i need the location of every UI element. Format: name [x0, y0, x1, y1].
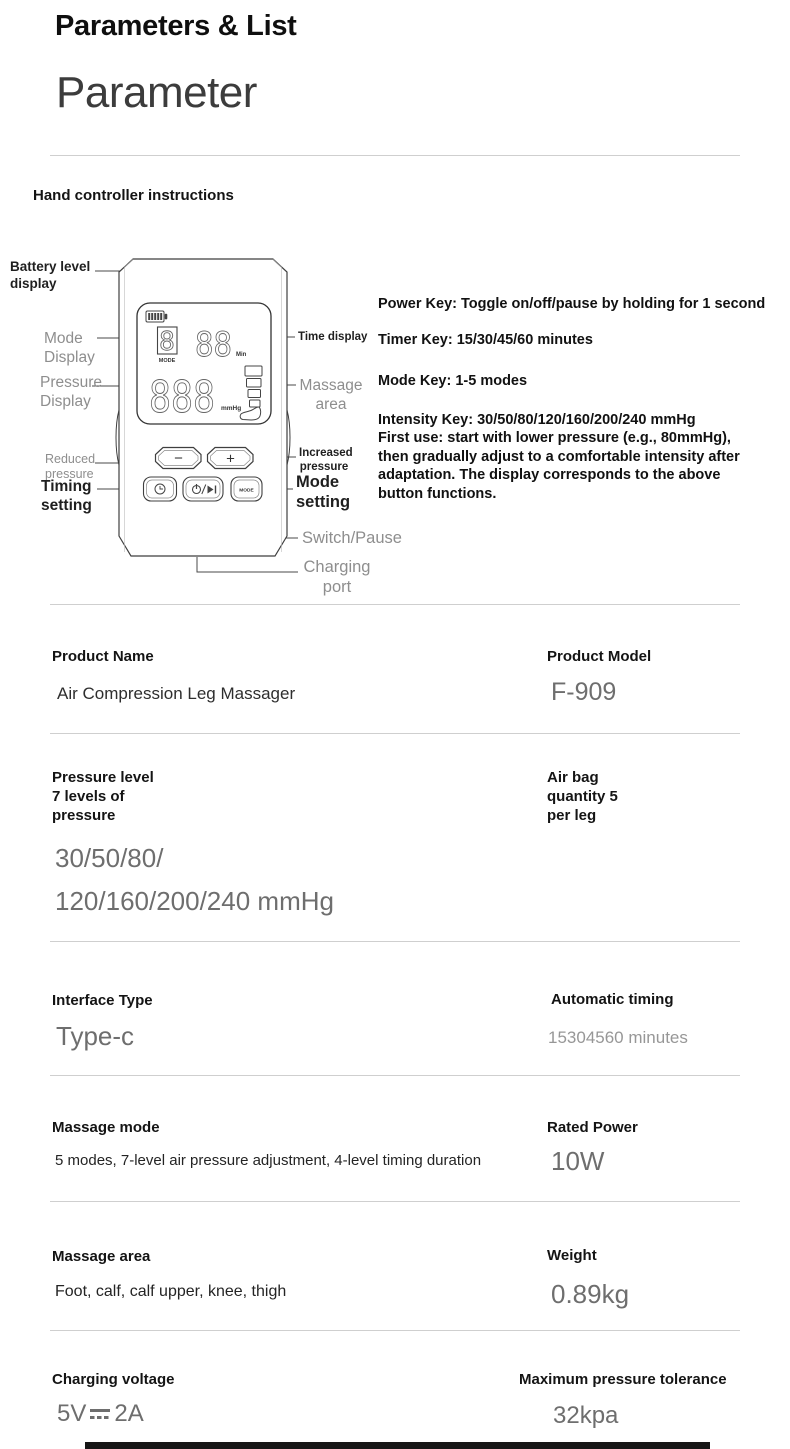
- first-use-instruction: First use: start with lower pressure (e.…: [378, 429, 790, 503]
- mode-button-label: MODE: [239, 487, 254, 493]
- time-unit-label: Min: [236, 352, 247, 358]
- product-name-label: Product Name: [52, 647, 154, 666]
- divider: [50, 1201, 740, 1202]
- switch-pause-label: Switch/Pause: [302, 529, 402, 549]
- mode-display-digit: 8: [159, 327, 175, 357]
- divider: [50, 155, 740, 156]
- interface-type-label: Interface Type: [52, 991, 153, 1010]
- time-display-digits: 88: [195, 325, 232, 365]
- divider: [50, 1330, 740, 1331]
- pressure-level-label: Pressure level 7 levels of pressure: [52, 768, 154, 825]
- weight-label: Weight: [547, 1246, 597, 1265]
- massage-mode-value: 5 modes, 7-level air pressure adjustment…: [55, 1152, 481, 1169]
- product-model-value: F-909: [551, 678, 616, 707]
- charging-voltage-label: Charging voltage: [52, 1370, 175, 1389]
- mode-display-caption: MODE: [159, 358, 176, 364]
- page-subtitle: Parameter: [56, 68, 257, 118]
- rated-power-value: 10W: [551, 1146, 604, 1177]
- footer-bar: [85, 1442, 710, 1449]
- automatic-timing-value: 15304560 minutes: [548, 1028, 688, 1048]
- mode-setting-label: Mode setting: [296, 473, 350, 512]
- hand-controller-diagram: 8 MODE 88 Min 888 mmHg −: [85, 250, 315, 585]
- charging-voltage-value: 5V2A: [57, 1400, 144, 1428]
- charging-port-label: Charging port: [303, 558, 371, 597]
- mode-display-label: Mode Display: [44, 329, 95, 367]
- massage-area-label: Massage area: [299, 376, 363, 414]
- timer-key-instruction: Timer Key: 15/30/45/60 minutes: [378, 331, 790, 350]
- divider: [50, 941, 740, 942]
- battery-level-label: Battery level display: [10, 259, 90, 292]
- max-pressure-value: 32kpa: [553, 1402, 618, 1430]
- air-bag-label: Air bag quantity 5 per leg: [547, 768, 618, 825]
- pressure-unit-label: mmHg: [221, 405, 241, 412]
- divider: [50, 733, 740, 734]
- divider: [50, 1075, 740, 1076]
- section-heading: Hand controller instructions: [33, 187, 234, 204]
- pressure-level-value-line2: 120/160/200/240 mmHg: [55, 886, 334, 917]
- page-title: Parameters & List: [55, 10, 297, 43]
- dc-symbol-icon: [90, 1408, 110, 1421]
- max-pressure-label: Maximum pressure tolerance: [519, 1370, 727, 1389]
- mode-key-instruction: Mode Key: 1-5 modes: [378, 372, 790, 391]
- decrease-button-label: −: [174, 450, 183, 467]
- massage-area-spec-value: Foot, calf, calf upper, knee, thigh: [55, 1283, 286, 1301]
- timing-setting-label: Timing setting: [41, 477, 92, 515]
- product-model-label: Product Model: [547, 647, 651, 666]
- charging-voltage-amps: 2A: [114, 1400, 143, 1427]
- divider: [50, 604, 740, 605]
- interface-type-value: Type-c: [56, 1021, 134, 1052]
- increase-button-label: +: [226, 451, 235, 468]
- pressure-display-label: Pressure Display: [40, 373, 102, 411]
- product-name-value: Air Compression Leg Massager: [57, 684, 295, 704]
- weight-value: 0.89kg: [551, 1279, 629, 1310]
- product-spec-page: Parameters & List Parameter Hand control…: [0, 0, 790, 1449]
- pressure-display-digits: 888: [149, 372, 215, 423]
- massage-area-spec-label: Massage area: [52, 1247, 150, 1266]
- power-key-instruction: Power Key: Toggle on/off/pause by holdin…: [378, 295, 790, 314]
- increased-pressure-label: Increased pressure: [299, 447, 349, 474]
- charging-voltage-volts: 5V: [57, 1400, 86, 1427]
- pressure-level-value-line1: 30/50/80/: [55, 843, 163, 874]
- massage-mode-label: Massage mode: [52, 1118, 160, 1137]
- intensity-key-instruction: Intensity Key: 30/50/80/120/160/200/240 …: [378, 411, 790, 430]
- automatic-timing-label: Automatic timing: [551, 990, 674, 1009]
- time-display-label: Time display: [298, 331, 367, 345]
- rated-power-label: Rated Power: [547, 1118, 638, 1137]
- controller-screen: 8 MODE 88 Min 888 mmHg: [137, 303, 271, 424]
